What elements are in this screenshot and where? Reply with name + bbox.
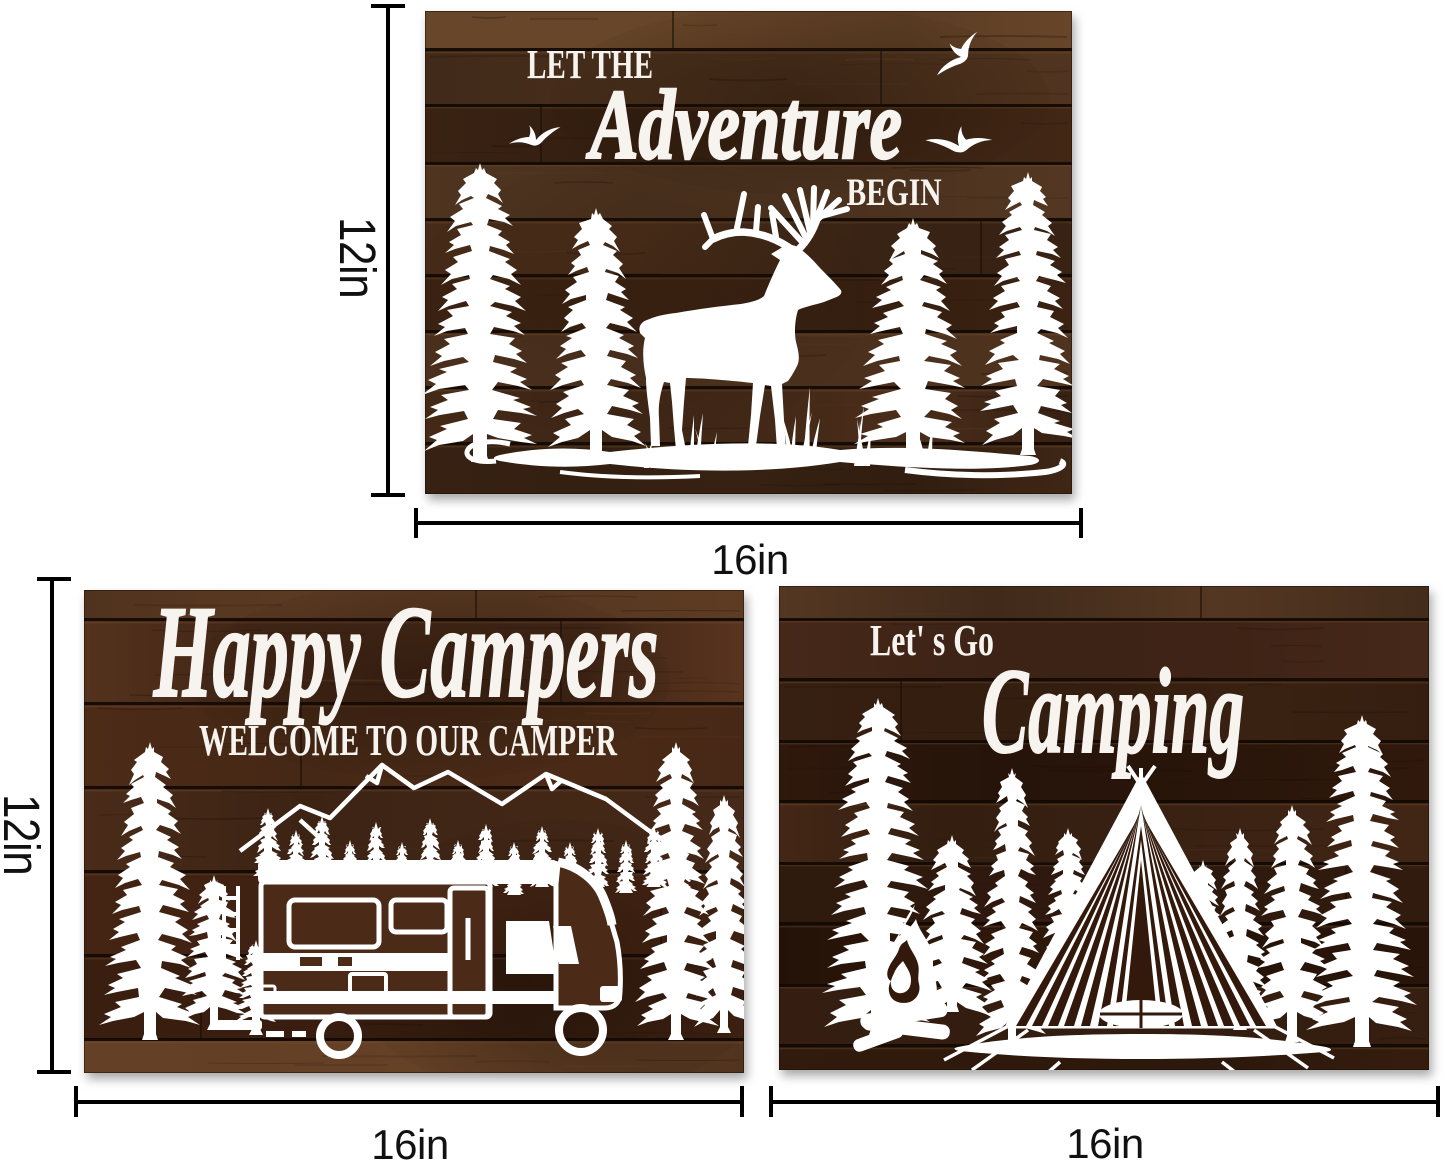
svg-text:Adventure: Adventure (586, 69, 902, 180)
svg-text:WELCOME TO OUR CAMPER: WELCOME TO OUR CAMPER (199, 716, 618, 765)
svg-text:BEGIN: BEGIN (847, 171, 942, 214)
svg-text:Happy Campers: Happy Campers (153, 590, 659, 725)
svg-text:Camping: Camping (982, 644, 1244, 779)
svg-text:Let' s Go: Let' s Go (870, 616, 994, 665)
